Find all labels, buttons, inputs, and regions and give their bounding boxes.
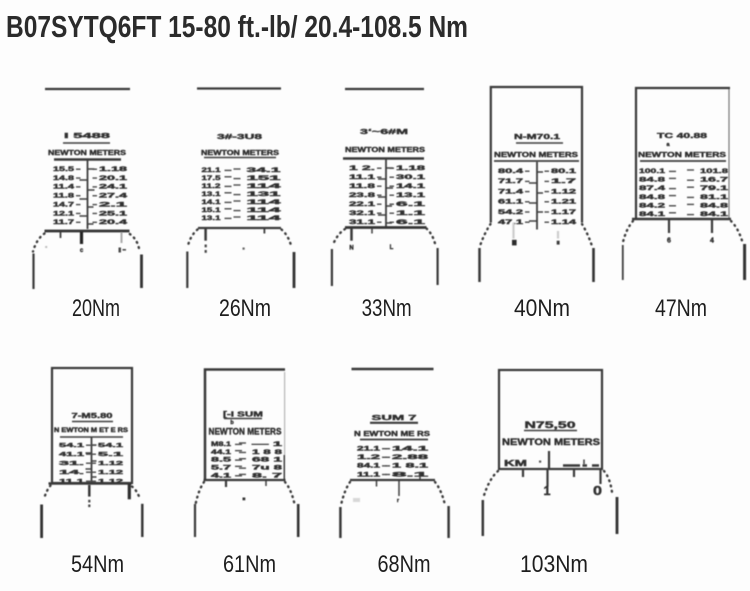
svg-text:44.1: 44.1 — [211, 449, 232, 456]
svg-text:1.17: 1.17 — [551, 209, 577, 216]
svg-text:100.1: 100.1 — [639, 168, 665, 175]
svg-text:81.1: 81.1 — [700, 194, 728, 201]
svg-text:11.2: 11.2 — [202, 183, 222, 190]
svg-text:11.4: 11.4 — [53, 184, 75, 191]
svg-text:6: 6 — [667, 238, 671, 245]
svg-text:15.5: 15.5 — [53, 166, 75, 173]
svg-text:3‘~6#M: 3‘~6#M — [360, 127, 408, 136]
svg-text:84.8: 84.8 — [639, 194, 665, 201]
svg-text:11.8: 11.8 — [349, 183, 376, 190]
svg-text:47Nm: 47Nm — [655, 295, 707, 322]
svg-text:21.1: 21.1 — [202, 167, 222, 174]
svg-text:1 8.1: 1 8.1 — [392, 463, 429, 470]
svg-text:N EWTON M ET E RS: N EWTON M ET E RS — [54, 428, 128, 434]
svg-text:84.1: 84.1 — [700, 211, 728, 218]
svg-text:79.1: 79.1 — [700, 185, 728, 192]
svg-text:80.1: 80.1 — [551, 168, 577, 175]
svg-text:21.1: 21.1 — [357, 446, 381, 453]
svg-text:114: 114 — [247, 183, 282, 190]
svg-text:NEWTON METERS: NEWTON METERS — [502, 437, 600, 447]
svg-text:1.14: 1.14 — [551, 219, 577, 226]
svg-text:1.12: 1.12 — [551, 188, 577, 195]
svg-text:8. 7: 8. 7 — [252, 472, 284, 479]
svg-text:23.8: 23.8 — [349, 192, 376, 199]
svg-text:7-M5.80: 7-M5.80 — [72, 411, 113, 420]
svg-text:N: N — [349, 246, 353, 252]
svg-text:20.1: 20.1 — [99, 175, 128, 182]
svg-text:B07SYTQ6FT 15-80 ft.-lb/ 20.4-: B07SYTQ6FT 15-80 ft.-lb/ 20.4-108.5 Nm — [6, 9, 468, 44]
svg-text:I 5488: I 5488 — [64, 131, 110, 140]
svg-text:NEWTON METERS: NEWTON METERS — [209, 427, 282, 437]
svg-text:26Nm: 26Nm — [219, 295, 271, 322]
svg-text:5.7: 5.7 — [211, 465, 232, 472]
svg-text:114: 114 — [247, 207, 282, 214]
svg-text:80.4: 80.4 — [498, 168, 524, 175]
svg-text:25.1: 25.1 — [99, 210, 128, 217]
svg-text:1.12: 1.12 — [98, 470, 123, 476]
svg-text:a: a — [666, 142, 670, 148]
svg-text:NEWTON METERS: NEWTON METERS — [494, 150, 578, 159]
svg-text:2.1: 2.1 — [99, 201, 128, 208]
svg-text:14.8: 14.8 — [53, 175, 75, 182]
svg-text:14.: 14. — [59, 470, 85, 476]
svg-text:114: 114 — [247, 199, 282, 206]
svg-text:12.1: 12.1 — [53, 210, 75, 217]
svg-text:1 2.: 1 2. — [349, 165, 375, 172]
svg-text:47.1: 47.1 — [498, 219, 524, 226]
svg-text:14.1: 14.1 — [202, 199, 222, 206]
svg-text:30.1: 30.1 — [396, 174, 426, 181]
svg-text:KM: KM — [504, 459, 528, 468]
svg-text:84.1: 84.1 — [639, 211, 665, 218]
svg-text:8.5: 8.5 — [211, 457, 232, 464]
svg-text:N-M70.1: N-M70.1 — [514, 132, 560, 141]
svg-text:N75,50: N75,50 — [525, 420, 576, 430]
svg-text:61.1: 61.1 — [498, 199, 524, 206]
svg-text:14.1: 14.1 — [396, 183, 426, 190]
svg-text:L: L — [390, 245, 394, 251]
svg-text:71.4: 71.4 — [498, 188, 524, 195]
svg-text:2.88: 2.88 — [392, 454, 430, 461]
svg-text:68Nm: 68Nm — [378, 551, 431, 578]
svg-text:54.1: 54.1 — [98, 443, 125, 449]
svg-text:15.1: 15.1 — [202, 207, 222, 214]
svg-text:87.4: 87.4 — [639, 185, 665, 192]
svg-text:61Nm: 61Nm — [223, 551, 276, 578]
svg-text:NEWTON METERS: NEWTON METERS — [345, 145, 425, 154]
svg-text:0: 0 — [593, 483, 602, 498]
svg-text:13.1: 13.1 — [202, 215, 222, 222]
svg-text:11.7: 11.7 — [53, 219, 75, 226]
svg-text:22.1: 22.1 — [349, 201, 376, 208]
svg-text:1.18: 1.18 — [99, 166, 128, 173]
svg-text:54.1: 54.1 — [59, 443, 86, 449]
svg-text:1.12: 1.12 — [98, 461, 123, 467]
svg-text:c: c — [80, 248, 84, 254]
svg-text:SUM 7: SUM 7 — [372, 413, 417, 422]
svg-text:13.1: 13.1 — [202, 191, 222, 198]
svg-text:84.8: 84.8 — [639, 177, 665, 184]
svg-text:20.4: 20.4 — [99, 219, 128, 226]
svg-text:41.1: 41.1 — [59, 452, 86, 458]
svg-text:71.7: 71.7 — [498, 178, 524, 185]
svg-text:4.1: 4.1 — [211, 472, 232, 479]
svg-text:31.: 31. — [59, 461, 85, 467]
svg-text:1: 1 — [544, 483, 551, 498]
svg-text:11.1: 11.1 — [349, 174, 376, 181]
svg-text:N EWTON ME RS: N EWTON ME RS — [354, 429, 430, 438]
svg-text:68 1: 68 1 — [252, 457, 283, 464]
svg-text:1 8 8: 1 8 8 — [252, 449, 283, 456]
svg-text:5.1: 5.1 — [98, 452, 125, 458]
svg-text:6.1: 6.1 — [396, 201, 426, 208]
svg-text:— 1: — 1 — [252, 441, 283, 448]
svg-text:32.1: 32.1 — [349, 210, 376, 217]
svg-text:54.2: 54.2 — [498, 209, 524, 216]
svg-text:84.1: 84.1 — [357, 463, 381, 470]
svg-text:7u 8: 7u 8 — [252, 465, 283, 472]
svg-text:TC 40.88: TC 40.88 — [657, 131, 707, 140]
svg-text:54Nm: 54Nm — [71, 551, 124, 578]
svg-text:1.1: 1.1 — [396, 210, 426, 217]
svg-text:M8.1: M8.1 — [211, 441, 232, 448]
svg-text:84.2: 84.2 — [639, 202, 665, 209]
svg-text:[-I SUM: [-I SUM — [223, 410, 263, 419]
svg-text:20Nm: 20Nm — [72, 295, 120, 322]
svg-text:84.8: 84.8 — [700, 202, 728, 209]
svg-text:40Nm: 40Nm — [514, 295, 570, 322]
svg-text:151: 151 — [247, 175, 282, 182]
svg-text:r: r — [397, 498, 400, 504]
svg-text:4: 4 — [710, 238, 714, 245]
svg-text:6.1: 6.1 — [396, 219, 426, 226]
svg-text:101.8: 101.8 — [700, 168, 728, 175]
svg-text:131: 131 — [247, 191, 282, 198]
svg-text:NEWTON METERS: NEWTON METERS — [638, 150, 726, 159]
svg-text:11.8: 11.8 — [53, 193, 75, 200]
svg-text:b: b — [230, 420, 234, 426]
svg-text:1.21: 1.21 — [551, 199, 577, 206]
svg-text:24.1: 24.1 — [99, 184, 128, 191]
svg-text:34.1: 34.1 — [247, 167, 282, 174]
svg-text:11.1: 11.1 — [357, 471, 381, 478]
svg-text:14.7: 14.7 — [53, 201, 75, 208]
svg-text:17.5: 17.5 — [202, 175, 222, 182]
svg-text:NEWTON METERS: NEWTON METERS — [201, 148, 279, 157]
svg-text:3#-3U8: 3#-3U8 — [217, 132, 262, 141]
svg-text:8.1: 8.1 — [392, 471, 430, 478]
svg-text:14.1: 14.1 — [392, 446, 430, 453]
svg-text:16.7: 16.7 — [700, 177, 728, 184]
svg-text:33Nm: 33Nm — [362, 295, 412, 322]
svg-text:114: 114 — [247, 215, 282, 222]
svg-text:13.1: 13.1 — [396, 192, 426, 199]
svg-text:1.18: 1.18 — [396, 165, 426, 172]
svg-text:1.2: 1.2 — [357, 454, 381, 461]
svg-text:1.7: 1.7 — [551, 178, 577, 185]
svg-text:31.1: 31.1 — [349, 219, 376, 226]
svg-text:103Nm: 103Nm — [520, 551, 588, 578]
svg-text:NEWTON METERS: NEWTON METERS — [48, 148, 126, 157]
svg-text:27.4: 27.4 — [99, 193, 128, 200]
